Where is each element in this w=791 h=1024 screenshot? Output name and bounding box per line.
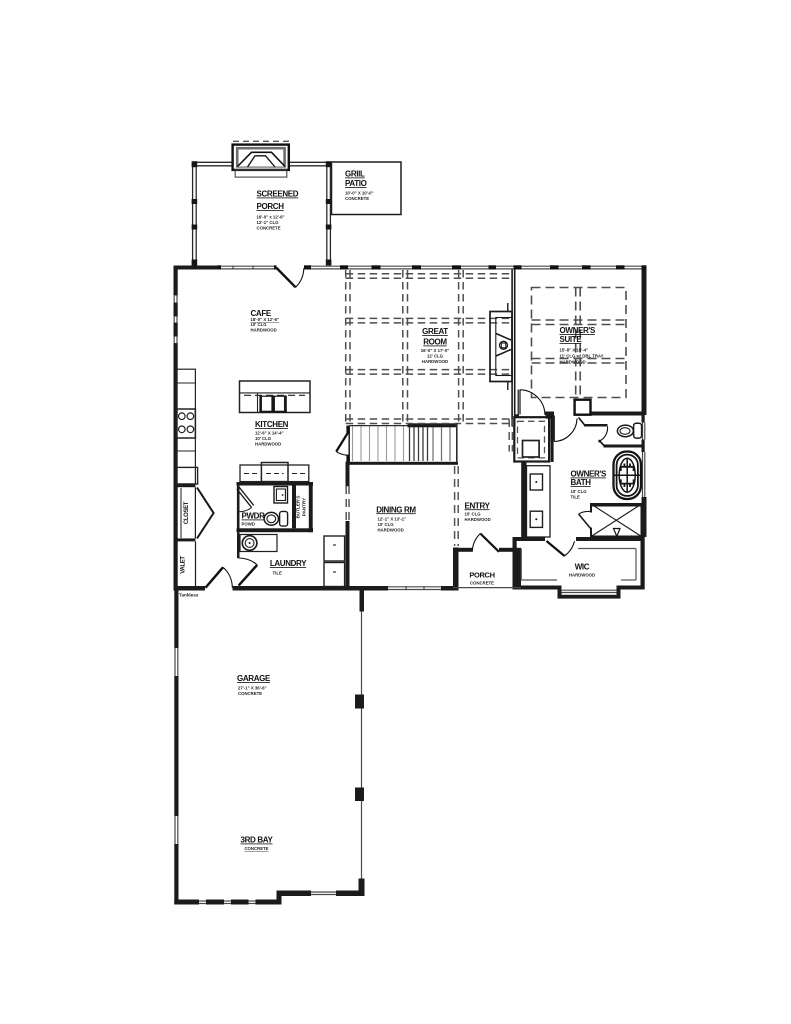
svg-text:GREAT: GREAT bbox=[422, 327, 448, 336]
svg-text:12'-1" CLG: 12'-1" CLG bbox=[257, 220, 280, 225]
svg-text:DINING RM: DINING RM bbox=[376, 505, 416, 514]
svg-text:CONCRETE: CONCRETE bbox=[470, 581, 494, 586]
svg-text:ROOM: ROOM bbox=[423, 338, 447, 347]
svg-text:16'-0" X 17'-0": 16'-0" X 17'-0" bbox=[421, 348, 450, 353]
svg-text:BATH: BATH bbox=[571, 478, 592, 487]
svg-text:HARDWOOD: HARDWOOD bbox=[251, 327, 277, 332]
svg-text:15'-8" X 18'-4": 15'-8" X 18'-4" bbox=[560, 348, 589, 353]
svg-text:LAUNDRY: LAUNDRY bbox=[270, 559, 307, 568]
svg-text:PORCH: PORCH bbox=[257, 202, 285, 211]
svg-text:BUTLER'S: BUTLER'S bbox=[296, 496, 301, 519]
svg-text:POWD: POWD bbox=[242, 522, 255, 527]
svg-text:10' CLG: 10' CLG bbox=[255, 436, 272, 441]
svg-text:27'-1" X 36'-6": 27'-1" X 36'-6" bbox=[238, 686, 267, 691]
svg-text:10' CLG: 10' CLG bbox=[465, 512, 482, 517]
svg-text:TILE: TILE bbox=[273, 571, 282, 576]
svg-text:CONCRETE: CONCRETE bbox=[238, 691, 262, 696]
svg-text:CONCRETE: CONCRETE bbox=[257, 226, 281, 231]
svg-text:12' CLG: 12' CLG bbox=[427, 354, 444, 359]
svg-text:SUITE: SUITE bbox=[560, 335, 583, 344]
svg-text:VALET: VALET bbox=[181, 556, 187, 574]
svg-text:HARDWOOD: HARDWOOD bbox=[465, 517, 491, 522]
svg-text:GARAGE: GARAGE bbox=[237, 674, 271, 683]
svg-text:OWNER'S: OWNER'S bbox=[560, 326, 596, 335]
svg-text:10'-0" X 10'-0": 10'-0" X 10'-0" bbox=[345, 191, 374, 196]
svg-text:12'-6" X 14'-4": 12'-6" X 14'-4" bbox=[255, 431, 284, 436]
svg-text:HARDWOOD: HARDWOOD bbox=[569, 573, 595, 578]
svg-text:PORCH: PORCH bbox=[469, 571, 494, 580]
svg-text:KITCHEN: KITCHEN bbox=[255, 420, 289, 429]
svg-text:PATIO: PATIO bbox=[345, 179, 367, 188]
svg-text:TILE: TILE bbox=[571, 495, 580, 500]
svg-text:WIC: WIC bbox=[575, 563, 590, 572]
svg-text:11' CLG w/ DBL TRAY: 11' CLG w/ DBL TRAY bbox=[560, 354, 604, 359]
svg-text:HARDWOOD: HARDWOOD bbox=[560, 360, 586, 365]
svg-text:HARDWOOD: HARDWOOD bbox=[378, 528, 404, 533]
svg-text:12'-1" X 13'-1": 12'-1" X 13'-1" bbox=[378, 517, 407, 522]
svg-text:PWDR: PWDR bbox=[242, 512, 266, 521]
svg-text:CLOSET: CLOSET bbox=[184, 501, 190, 524]
svg-text:10' CLG: 10' CLG bbox=[378, 522, 395, 527]
svg-text:HARDWOOD: HARDWOOD bbox=[255, 442, 281, 447]
svg-text:10' CLG: 10' CLG bbox=[571, 489, 588, 494]
svg-text:ENTRY: ENTRY bbox=[465, 501, 491, 510]
svg-text:Tankless: Tankless bbox=[179, 593, 199, 598]
svg-text:SCREENED: SCREENED bbox=[257, 190, 299, 199]
svg-text:16'-0" x 12'-6": 16'-0" x 12'-6" bbox=[257, 215, 285, 220]
svg-text:CONCRETE: CONCRETE bbox=[244, 846, 268, 851]
svg-text:CONCRETE: CONCRETE bbox=[345, 196, 369, 201]
svg-text:GRIIL: GRIIL bbox=[345, 170, 365, 179]
svg-text:3RD BAY: 3RD BAY bbox=[241, 836, 274, 845]
svg-text:HARDWOOD: HARDWOOD bbox=[422, 359, 448, 364]
svg-text:PANTRY: PANTRY bbox=[302, 498, 307, 516]
